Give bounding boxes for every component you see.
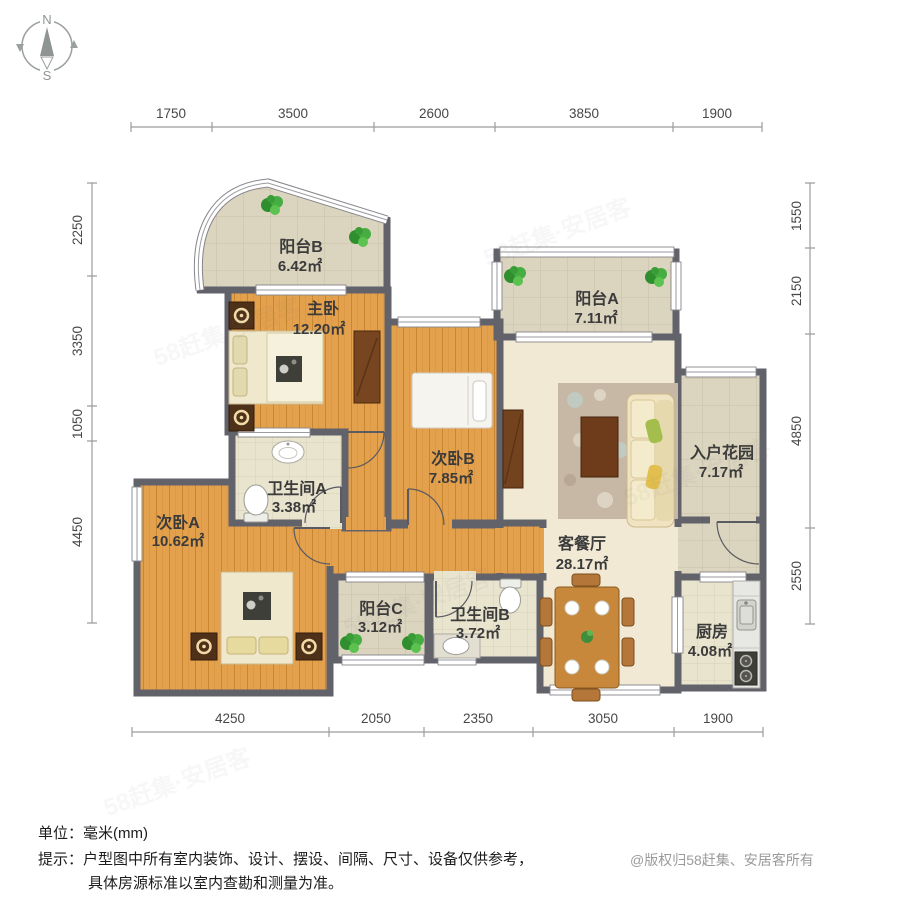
label-bath-a: 卫生间A: [267, 479, 327, 498]
dim-top-4: 3850: [569, 106, 599, 121]
area-balcony-a: 7.11㎡: [574, 309, 617, 327]
dim-bottom-2: 2050: [361, 711, 391, 726]
copyright-note: @版权归58赶集、安居客所有: [630, 850, 814, 870]
dim-right-4: 2550: [789, 561, 804, 591]
tip-note-line1: 提示：户型图中所有室内装饰、设计、摆设、间隔、尺寸、设备仅供参考，: [38, 848, 533, 869]
tv-cabinet-icon: [503, 410, 523, 488]
bedroom-b-bed-icon: [412, 373, 492, 428]
dim-bottom-5: 1900: [703, 711, 733, 726]
area-bath-b: 3.72㎡: [456, 624, 500, 642]
dim-left-4: 4450: [70, 517, 85, 547]
dim-right-2: 2150: [789, 276, 804, 306]
area-kitchen: 4.08㎡: [688, 642, 732, 660]
dim-top-1: 1750: [156, 106, 186, 121]
label-living-dining: 客餐厅: [558, 534, 606, 553]
compass-south-label: S: [43, 68, 52, 83]
area-balcony-b: 6.42㎡: [278, 257, 322, 275]
dim-bottom-4: 3050: [588, 711, 618, 726]
area-bath-a: 3.38㎡: [272, 498, 316, 516]
label-bedroom-a: 次卧A: [156, 513, 200, 532]
dim-right-3: 4850: [789, 416, 804, 446]
watermark-text: 58赶集·安居客: [100, 743, 256, 823]
tip-note-line2: 具体房源标准以室内查勘和测量为准。: [88, 872, 343, 893]
label-master: 主卧: [307, 299, 339, 318]
label-bedroom-b: 次卧B: [431, 449, 475, 468]
label-bath-b: 卫生间B: [450, 605, 510, 624]
label-balcony-b: 阳台B: [279, 237, 323, 256]
kitchen-counter-icon: [733, 581, 760, 688]
area-living-dining: 28.17㎡: [556, 555, 609, 573]
floorplan-page: 阳台B 6.42㎡ 主卧 12.20㎡ 阳台A 7.11㎡ 次卧B 7.85㎡ …: [0, 0, 900, 900]
dim-bottom-1: 4250: [215, 711, 245, 726]
label-balcony-a: 阳台A: [575, 289, 619, 308]
floor-vestibule: [678, 520, 763, 577]
unit-note: 单位：毫米(mm): [38, 822, 148, 843]
area-bedroom-b: 7.85㎡: [429, 469, 473, 487]
dim-bottom-3: 2350: [463, 711, 493, 726]
compass-north-label: N: [42, 12, 51, 27]
area-master: 12.20㎡: [293, 320, 346, 338]
floorplan-svg: 阳台B 6.42㎡ 主卧 12.20㎡ 阳台A 7.11㎡ 次卧B 7.85㎡ …: [0, 0, 900, 900]
dim-top-2: 3500: [278, 106, 308, 121]
dim-top-3: 2600: [419, 106, 449, 121]
dim-left-2: 3350: [70, 326, 85, 356]
coffee-table-icon: [581, 417, 618, 477]
dim-right-1: 1550: [789, 201, 804, 231]
label-kitchen: 厨房: [696, 622, 728, 641]
dim-left-3: 1050: [70, 409, 85, 439]
compass-icon: N S: [16, 12, 78, 83]
area-bedroom-a: 10.62㎡: [152, 532, 205, 550]
dim-left-1: 2250: [70, 215, 85, 245]
dim-top-5: 1900: [702, 106, 732, 121]
